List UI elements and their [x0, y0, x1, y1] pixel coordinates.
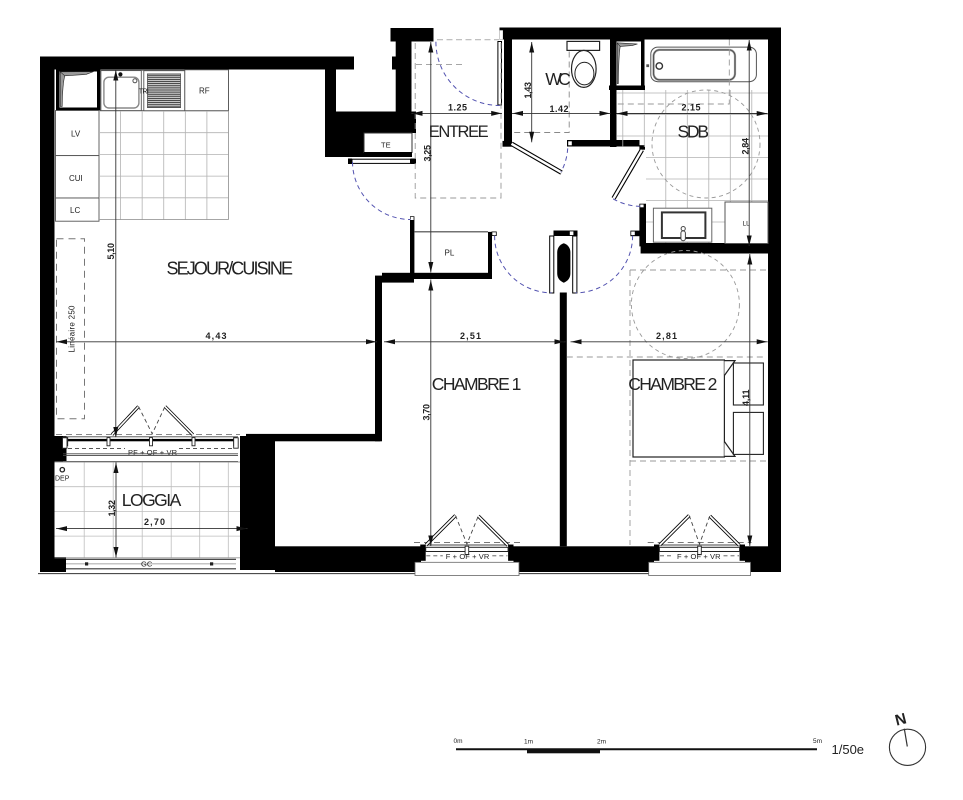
svg-text:4,43: 4,43 [206, 331, 227, 341]
svg-text:CHAMBRE 1: CHAMBRE 1 [432, 374, 522, 394]
svg-text:2,84: 2,84 [741, 138, 751, 155]
svg-text:LC: LC [70, 206, 80, 215]
svg-text:SEJOUR/CUISINE: SEJOUR/CUISINE [167, 259, 294, 279]
svg-text:GC: GC [141, 560, 153, 569]
svg-text:2,81: 2,81 [656, 331, 677, 341]
svg-text:1.25: 1.25 [448, 103, 467, 113]
svg-text:1,43: 1,43 [523, 82, 533, 99]
svg-text:DEP: DEP [55, 476, 70, 483]
svg-text:Linéaire 250: Linéaire 250 [68, 305, 77, 353]
svg-text:RF: RF [199, 87, 210, 96]
svg-text:2m: 2m [597, 738, 606, 745]
svg-text:5,10: 5,10 [106, 243, 116, 260]
svg-text:CHAMBRE 2: CHAMBRE 2 [628, 374, 717, 394]
svg-text:TE: TE [381, 141, 391, 150]
svg-text:PL: PL [445, 249, 455, 258]
svg-text:F + OF + VR: F + OF + VR [446, 552, 490, 561]
svg-text:1/50e: 1/50e [832, 742, 865, 757]
svg-text:2,51: 2,51 [460, 331, 481, 341]
svg-text:3,70: 3,70 [422, 404, 432, 421]
svg-text:3,25: 3,25 [422, 145, 432, 162]
svg-text:0m: 0m [454, 738, 463, 745]
svg-text:2,70: 2,70 [144, 517, 165, 527]
svg-text:5m: 5m [813, 738, 822, 745]
svg-text:WC: WC [545, 69, 571, 89]
svg-text:1,32: 1,32 [107, 500, 117, 517]
svg-text:4,11: 4,11 [741, 390, 751, 407]
svg-text:F + OF + VR: F + OF + VR [677, 552, 721, 561]
svg-text:LV: LV [71, 130, 81, 139]
svg-text:ENTREE: ENTREE [429, 123, 489, 141]
svg-text:2.15: 2.15 [682, 103, 701, 113]
svg-text:TRI: TRI [139, 89, 149, 96]
svg-text:SDB: SDB [678, 122, 710, 142]
svg-text:LOGGIA: LOGGIA [122, 490, 182, 510]
svg-text:CUI: CUI [69, 174, 83, 183]
svg-text:1m: 1m [524, 738, 533, 745]
svg-text:1.42: 1.42 [550, 104, 569, 114]
